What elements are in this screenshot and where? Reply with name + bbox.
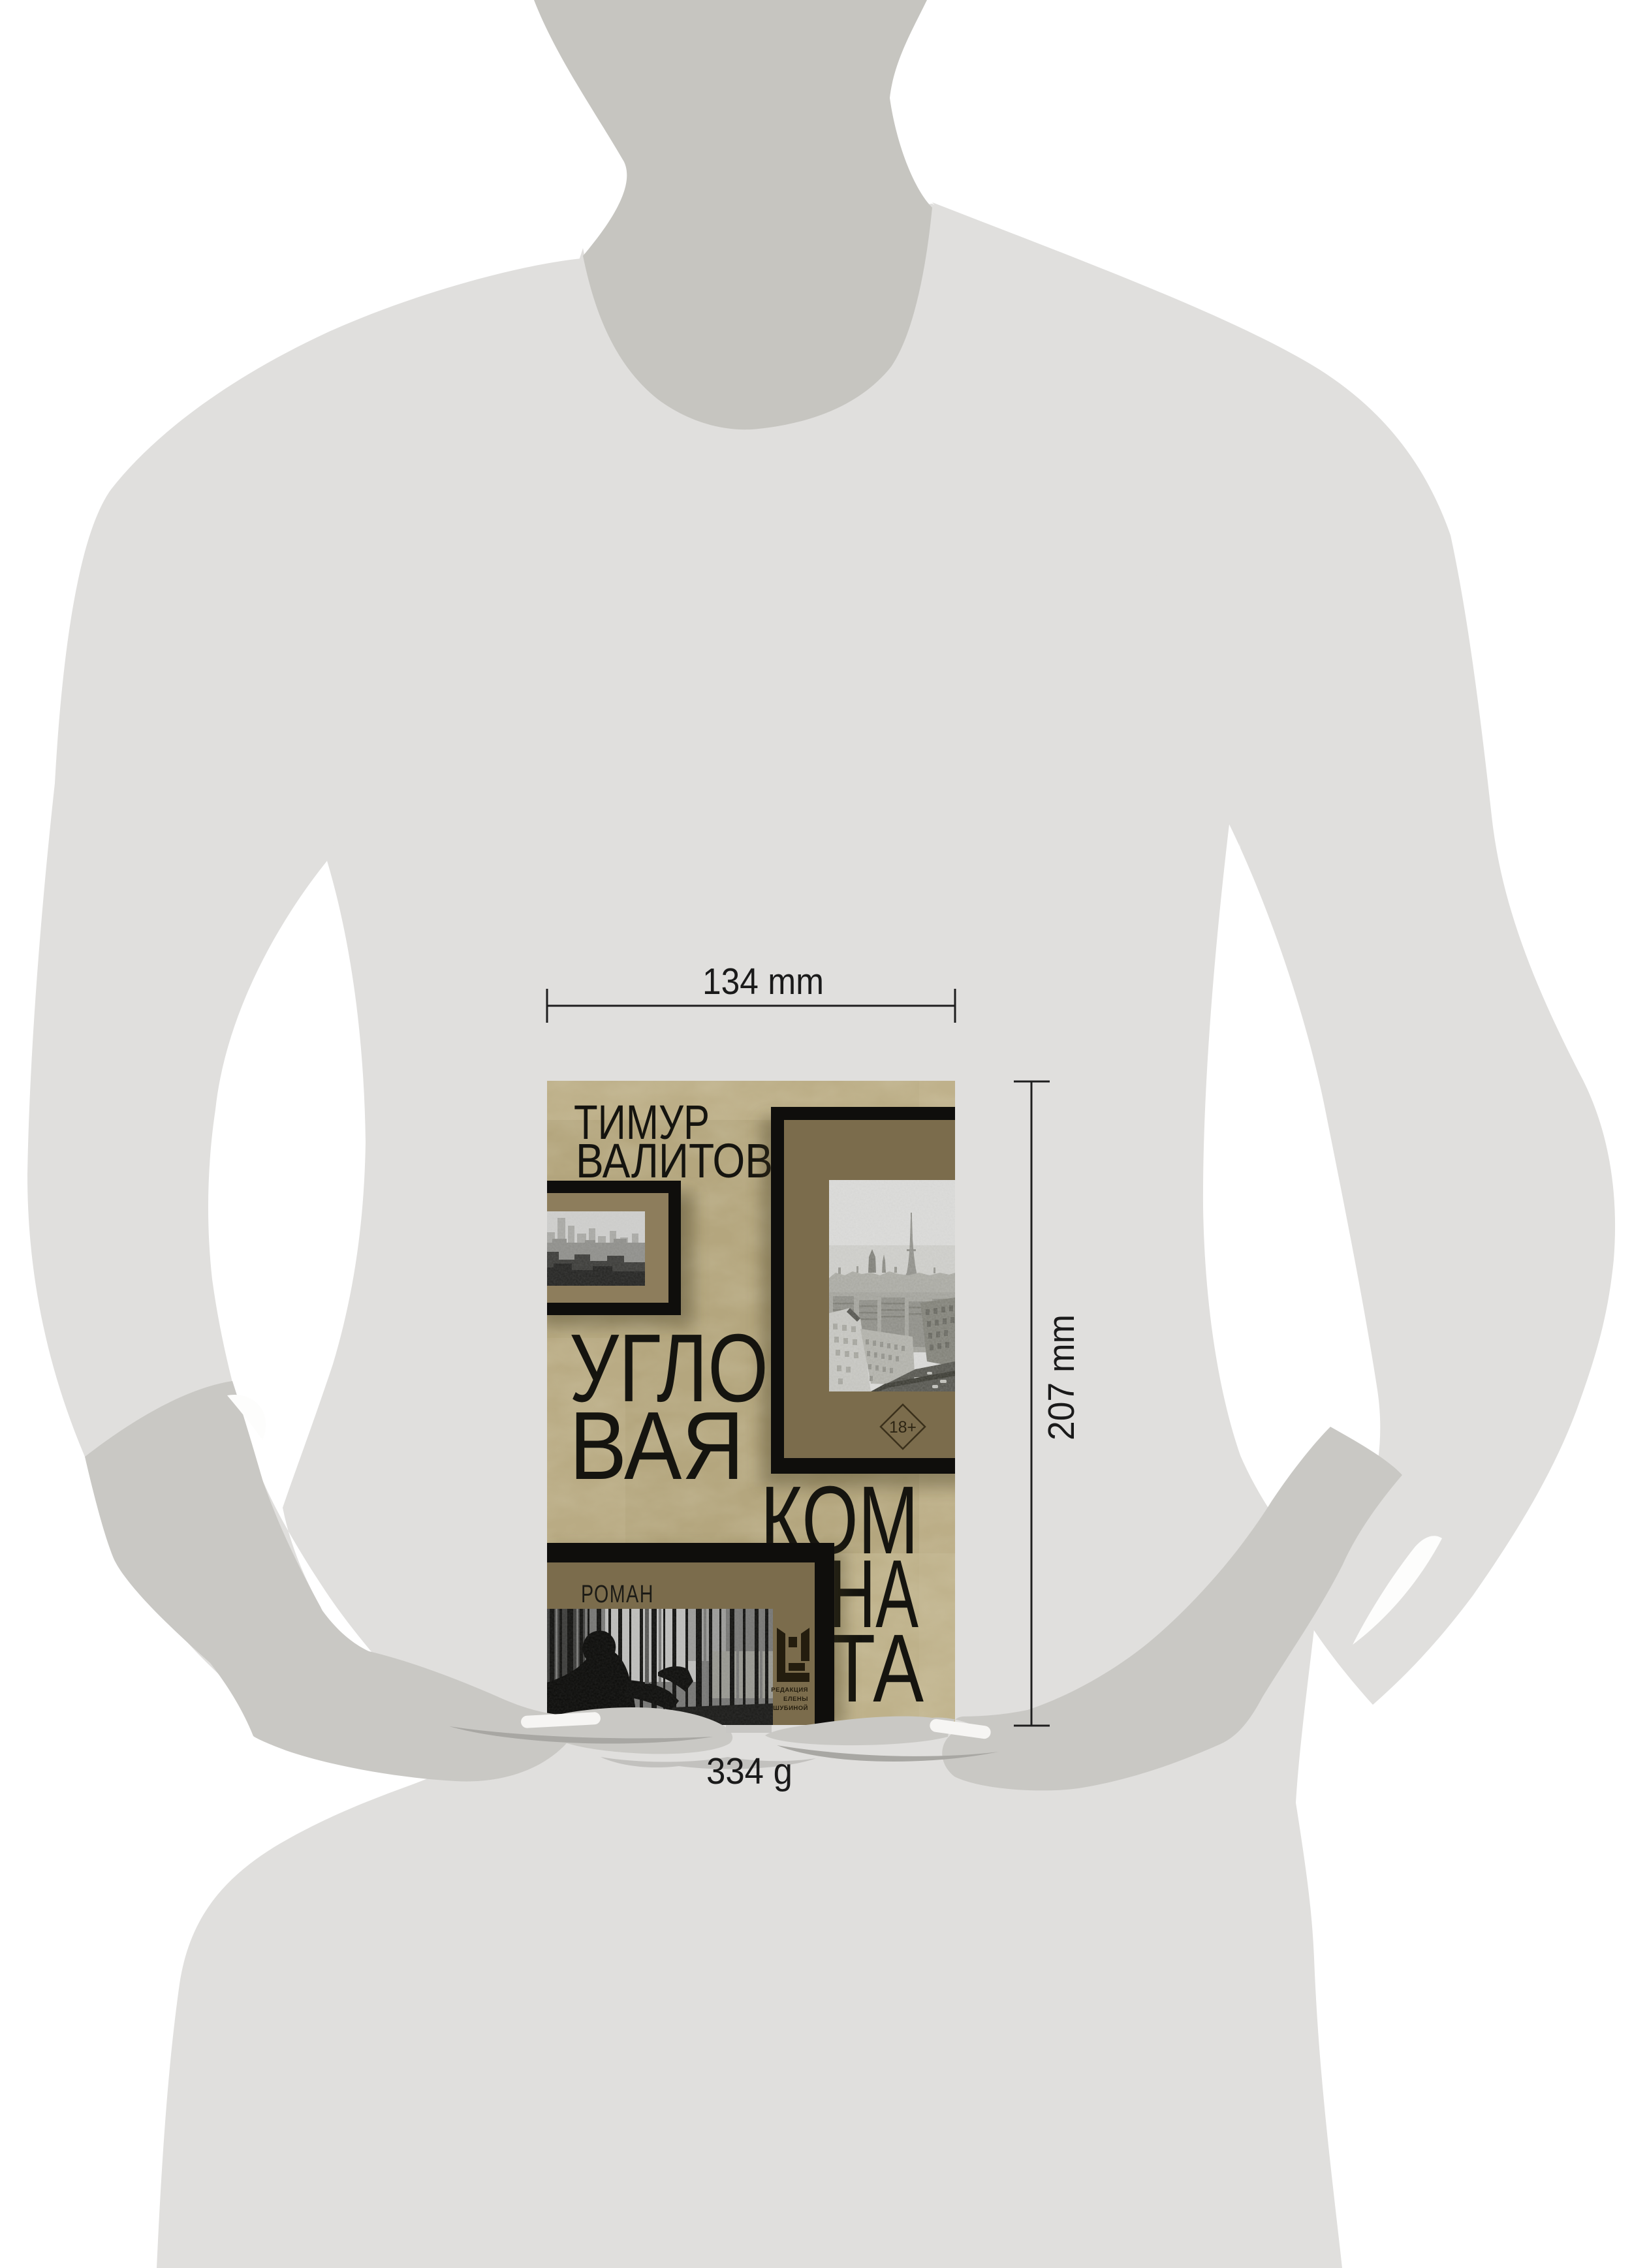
svg-text:207 mm: 207 mm	[1041, 1314, 1082, 1440]
svg-text:134 mm: 134 mm	[702, 961, 824, 1002]
svg-text:334 g: 334 g	[706, 1750, 792, 1792]
svg-text:ВАЯ: ВАЯ	[569, 1392, 744, 1500]
svg-text:18+: 18+	[889, 1418, 917, 1437]
svg-text:ЕЛЕНЫ: ЕЛЕНЫ	[783, 1696, 808, 1703]
svg-text:ВАЛИТОВ: ВАЛИТОВ	[576, 1134, 773, 1188]
svg-text:РОМАН: РОМАН	[581, 1581, 654, 1608]
svg-text:РЕДАКЦИЯ: РЕДАКЦИЯ	[771, 1686, 808, 1694]
svg-text:ШУБИНОЙ: ШУБИНОЙ	[773, 1704, 808, 1712]
